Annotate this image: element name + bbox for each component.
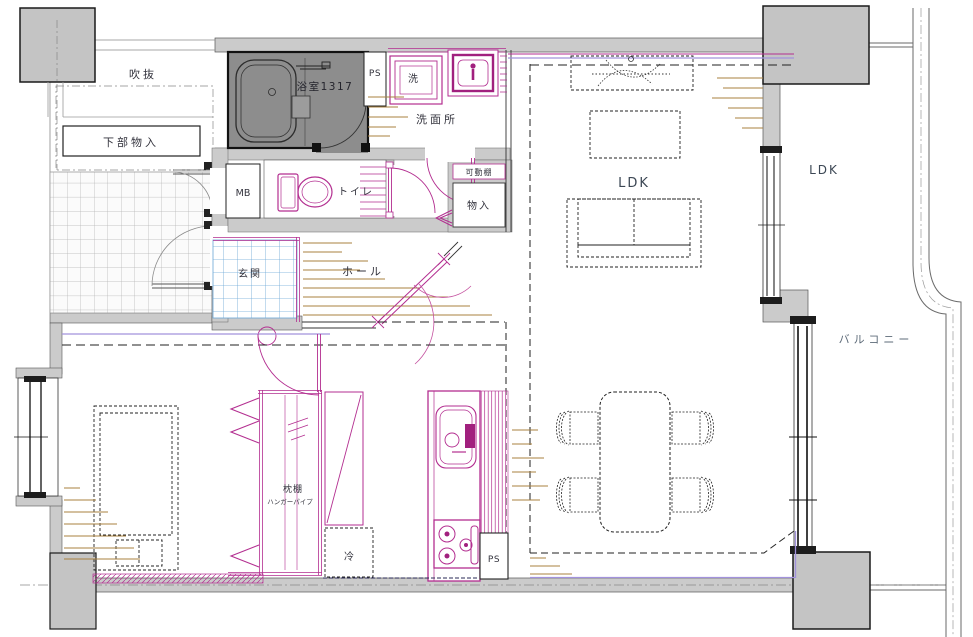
kitchen-floor-hatch	[512, 430, 572, 574]
pillow-shelf-label: 枕棚	[283, 483, 303, 495]
dining-chair	[557, 411, 599, 445]
meter-box: MB	[226, 164, 260, 218]
closet: 枕棚 ハンガーパイプ	[228, 390, 322, 576]
hanger-pipe-label: ハンガーパイプ	[267, 497, 313, 506]
meter-box-label: MB	[236, 188, 251, 199]
pipe-space-top-label: PS	[369, 69, 381, 79]
window-right-upper	[758, 146, 785, 304]
wash-basin	[448, 50, 498, 96]
mirror-door-panel	[325, 392, 363, 525]
corridor-tile-floor	[50, 172, 212, 313]
refrigerator: 冷	[325, 528, 373, 577]
dining-set	[557, 392, 714, 532]
ldk-label: LDK	[618, 176, 650, 191]
toilet-label: トイレ	[338, 187, 374, 198]
coffee-table	[590, 111, 680, 158]
bath-counter	[292, 96, 310, 118]
balcony-railing	[869, 8, 961, 637]
column-bottom-left	[50, 553, 96, 629]
dining-chair	[672, 477, 714, 513]
hanger-marks	[288, 418, 308, 440]
floor-plan-drawing: 下部物入 吹抜 浴室1317 PS	[0, 0, 973, 637]
washroom-label: 洗面所	[416, 113, 458, 126]
closet-floor-hatch-strip	[93, 574, 263, 583]
bedroom-floor-hatch	[64, 488, 140, 559]
refrigerator-label: 冷	[344, 550, 354, 563]
column-bottom-right	[793, 552, 870, 629]
dining-chair	[672, 411, 714, 445]
genkan-label: 玄関	[238, 267, 262, 280]
storage-label: 物入	[467, 199, 491, 212]
closet-folding-door-icon-top	[231, 398, 259, 443]
toilet-room: トイレ	[264, 160, 435, 218]
tv-board	[571, 56, 693, 90]
column-top-left	[20, 8, 95, 82]
bed	[94, 406, 178, 570]
closet-folding-door-icon-bottom	[231, 545, 259, 567]
hall-floor-hatch	[303, 243, 492, 315]
sofa	[567, 199, 701, 267]
bathroom-label: 浴室1317	[297, 80, 354, 93]
ldk-floor-hatch	[712, 78, 763, 128]
window-balcony-door	[789, 316, 817, 554]
void-label: 吹抜	[129, 67, 157, 81]
ldk-room: LDK	[508, 54, 796, 578]
balcony-label: バルコニー	[839, 333, 914, 346]
bathroom: 浴室1317	[228, 52, 370, 153]
column-top-right	[763, 6, 869, 84]
floor-plan-canvas: 下部物入 吹抜 浴室1317 PS	[0, 0, 973, 637]
pipe-space-top-box	[364, 52, 386, 106]
kitchen-back-hatch	[480, 391, 508, 533]
genkan: 玄関	[213, 237, 300, 322]
dining-chair	[557, 477, 599, 513]
window-bedroom-left	[14, 368, 62, 506]
movable-shelf-label: 可動棚	[466, 167, 493, 177]
ldk-outer-label: LDK	[809, 163, 839, 177]
bedroom-door	[258, 334, 321, 395]
hall-label: ホール	[342, 265, 384, 278]
pipe-space-bottom-label: PS	[488, 555, 500, 565]
washer-label: 洗	[408, 73, 418, 85]
dining-table	[600, 392, 670, 532]
under-storage-label: 下部物入	[103, 135, 159, 149]
bedroom: 枕棚 ハンガーパイプ 冷	[62, 334, 373, 583]
ldk-entry-door	[372, 242, 471, 364]
